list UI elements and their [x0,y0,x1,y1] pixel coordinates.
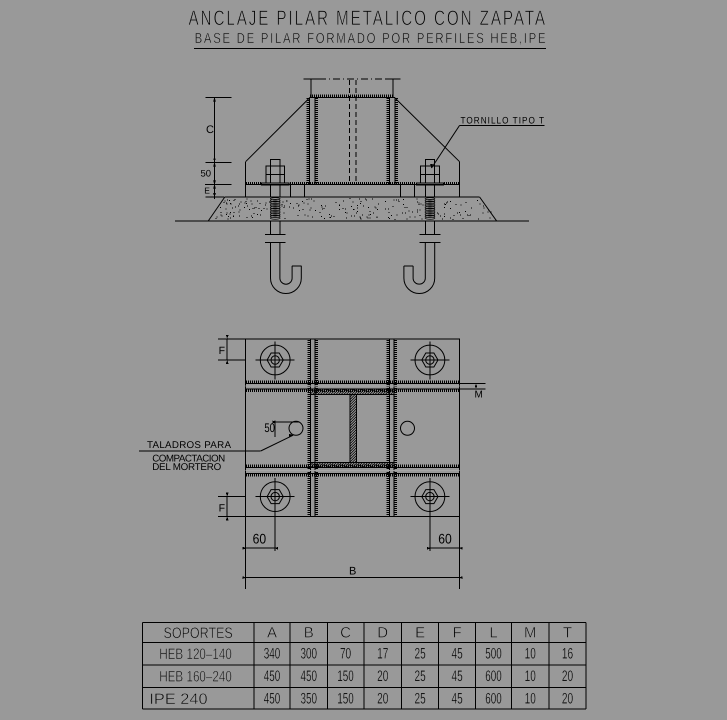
svg-text:C: C [206,124,214,136]
svg-text:17: 17 [377,646,388,663]
svg-text:L: L [489,624,497,641]
svg-text:450: 450 [300,668,317,685]
svg-text:B: B [349,565,356,577]
svg-text:16: 16 [562,646,573,663]
svg-text:600: 600 [485,691,502,708]
svg-text:350: 350 [300,691,317,708]
svg-text:450: 450 [264,668,281,685]
svg-text:IPE 240: IPE 240 [149,691,207,708]
svg-text:25: 25 [415,691,426,708]
svg-text:150: 150 [337,691,354,708]
svg-text:10: 10 [525,646,536,663]
svg-text:45: 45 [451,691,462,708]
svg-text:70: 70 [340,646,351,663]
svg-text:150: 150 [337,668,354,685]
svg-text:ANCLAJE PILAR METALICO CON ZAP: ANCLAJE PILAR METALICO CON ZAPATA [189,7,547,30]
svg-text:45: 45 [451,668,462,685]
svg-text:340: 340 [264,646,281,663]
svg-text:F: F [219,345,225,357]
svg-text:500: 500 [485,646,502,663]
svg-text:300: 300 [300,646,317,663]
svg-text:TALADROS PARA: TALADROS PARA [147,440,231,451]
svg-text:20: 20 [377,691,388,708]
svg-text:10: 10 [525,691,536,708]
svg-text:HEB 120–140: HEB 120–140 [159,646,232,663]
svg-text:HEB 160–240: HEB 160–240 [159,668,232,685]
svg-text:600: 600 [485,668,502,685]
svg-text:50: 50 [201,169,212,180]
svg-text:T: T [563,624,572,641]
svg-text:DEL MORTERO: DEL MORTERO [152,462,221,473]
svg-text:E: E [204,186,210,196]
svg-text:60: 60 [253,530,267,546]
svg-text:C: C [340,624,351,641]
svg-text:BASE DE PILAR FORMADO POR PERF: BASE DE PILAR FORMADO POR PERFILES HEB,I… [195,31,548,47]
svg-text:A: A [267,624,277,641]
svg-text:45: 45 [451,646,462,663]
svg-text:TORNILLO TIPO T: TORNILLO TIPO T [461,116,546,127]
svg-text:B: B [304,624,314,641]
svg-text:20: 20 [562,691,573,708]
svg-text:25: 25 [415,668,426,685]
svg-text:F: F [219,503,225,515]
svg-text:60: 60 [438,530,452,546]
svg-text:20: 20 [562,668,573,685]
svg-text:F: F [453,624,462,641]
svg-text:E: E [415,624,425,641]
svg-text:SOPORTES: SOPORTES [164,625,233,642]
svg-text:450: 450 [264,691,281,708]
svg-text:25: 25 [415,646,426,663]
svg-text:M: M [475,389,483,400]
svg-text:M: M [524,624,537,641]
svg-text:20: 20 [377,668,388,685]
svg-text:50: 50 [264,421,275,435]
svg-text:10: 10 [525,668,536,685]
svg-text:D: D [377,624,388,641]
